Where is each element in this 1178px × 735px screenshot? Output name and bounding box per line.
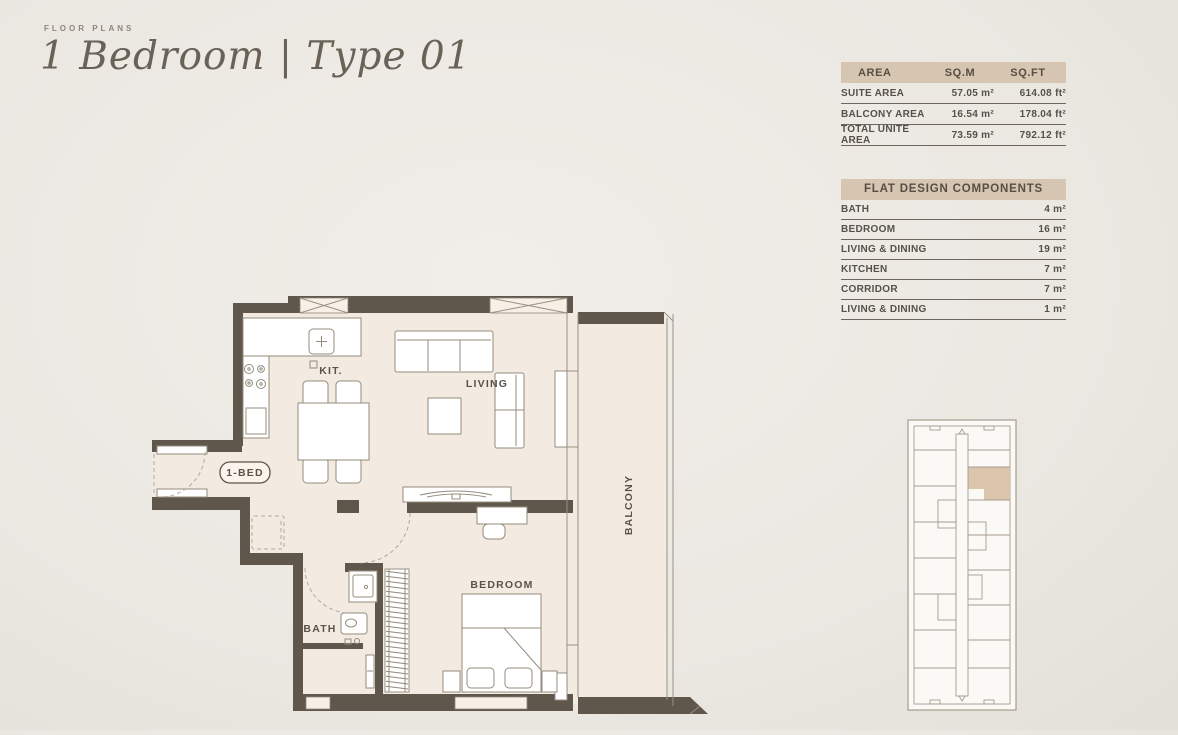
row-value: 4 m² [1044,204,1066,215]
table-row: BATH 4 m² [841,200,1066,220]
page-title: 1 Bedroom | Type 01 [40,34,472,79]
table-row: LIVING & DINING 19 m² [841,240,1066,260]
row-value: 19 m² [1038,244,1066,255]
wardrobe [385,569,409,692]
balcony-label: BALCONY [623,475,635,535]
row-label: CORRIDOR [841,284,898,295]
sqm-col-header: SQ.M [926,67,994,79]
unit-tag-label: 1-BED [226,467,264,479]
row-label: KITCHEN [841,264,888,275]
row-label: BATH [841,204,869,215]
area-table-header: AREA SQ.M SQ.FT [841,62,1066,83]
info-panel: AREA SQ.M SQ.FT SUITE AREA 57.05 m² 614.… [841,62,1066,320]
row-value: 7 m² [1044,264,1066,275]
row-sqft: 178.04 ft² [994,109,1066,120]
row-value: 7 m² [1044,284,1066,295]
sqft-col-header: SQ.FT [994,67,1066,79]
row-label: TOTAL UNITE AREA [841,124,926,146]
key-plan-outline [908,420,1016,710]
components-table: FLAT DESIGN COMPONENTS BATH 4 m² BEDROOM… [841,179,1066,320]
row-sqm: 57.05 m² [926,88,994,99]
building-key-plan [900,415,1025,715]
row-sqft: 792.12 ft² [994,130,1066,141]
area-table: AREA SQ.M SQ.FT SUITE AREA 57.05 m² 614.… [841,62,1066,146]
kitchen-label: KIT. [319,365,342,377]
balcony-railing [664,312,700,714]
row-value: 16 m² [1038,224,1066,235]
row-label: BEDROOM [841,224,895,235]
components-table-title: FLAT DESIGN COMPONENTS [841,179,1066,200]
table-row: BALCONY AREA 16.54 m² 178.04 ft² [841,104,1066,125]
eyebrow-floor-plans: FLOOR PLANS [44,24,134,33]
row-sqm: 16.54 m² [926,109,994,120]
area-col-header: AREA [841,67,926,79]
row-label: BALCONY AREA [841,109,926,120]
table-row: KITCHEN 7 m² [841,260,1066,280]
table-row: SUITE AREA 57.05 m² 614.08 ft² [841,83,1066,104]
row-sqm: 73.59 m² [926,130,994,141]
table-row: CORRIDOR 7 m² [841,280,1066,300]
table-row: BEDROOM 16 m² [841,220,1066,240]
floor-plan-drawing: KIT. LIVING BEDROOM BATH BALCONY 1-BED [140,285,725,735]
row-label: SUITE AREA [841,88,926,99]
unit-tag: 1-BED [220,462,270,483]
table-row: LIVING & DINING 1 m² [841,300,1066,320]
bath-label: BATH [303,623,336,635]
row-value: 1 m² [1044,304,1066,315]
row-label: LIVING & DINING [841,304,927,315]
row-label: LIVING & DINING [841,244,927,255]
table-row: TOTAL UNITE AREA 73.59 m² 792.12 ft² [841,125,1066,146]
row-sqft: 614.08 ft² [994,88,1066,99]
living-label: LIVING [466,378,508,390]
floor-plan-page: { "header": { "eyebrow": "FLOOR PLANS", … [0,0,1178,730]
bedroom-label: BEDROOM [470,579,533,591]
